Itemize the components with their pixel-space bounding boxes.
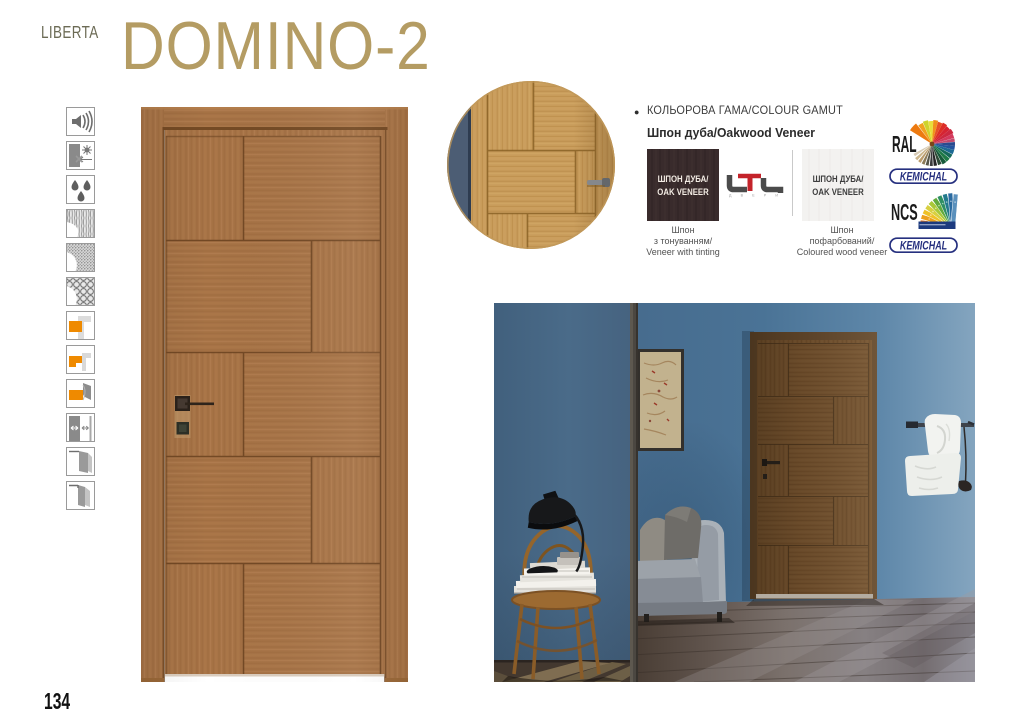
svg-text:KEMICHAL: KEMICHAL	[900, 240, 947, 252]
svg-text:KEMICHAL: KEMICHAL	[900, 171, 947, 183]
svg-text:ДВЕРИ: ДВЕРИ	[729, 194, 787, 198]
svg-text:ШПОН ДУБА/: ШПОН ДУБА/	[813, 173, 864, 184]
svg-text:OAK VENEER: OAK VENEER	[812, 186, 864, 197]
svg-text:OAK VENEER: OAK VENEER	[657, 186, 709, 197]
svg-text:ШПОН ДУБА/: ШПОН ДУБА/	[658, 173, 709, 184]
